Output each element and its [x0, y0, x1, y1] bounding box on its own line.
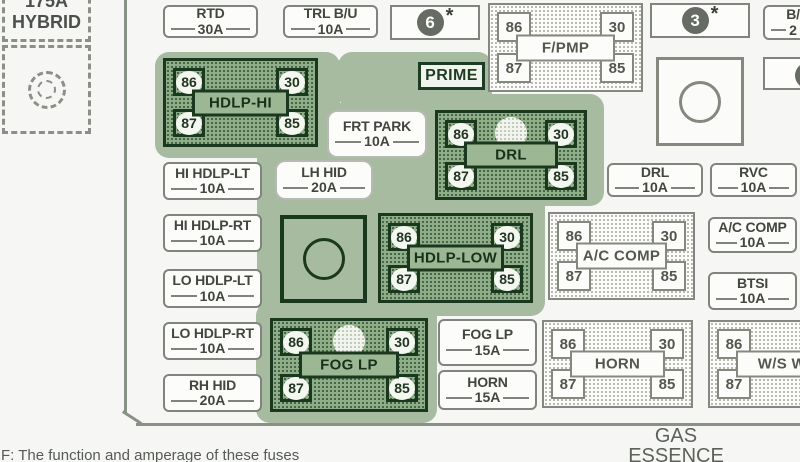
fuse-amperage: 10A	[364, 134, 390, 149]
amp-tick-left	[771, 29, 786, 31]
fuse-label: LO HDLP-RT	[168, 326, 257, 341]
amp-tick-left	[446, 349, 472, 351]
amp-tick-left	[171, 188, 197, 190]
amp-tick-right	[503, 397, 529, 399]
amp-tick-right	[503, 349, 529, 351]
relay-f_pmp: 86308785F/PMP	[488, 3, 643, 92]
amp-tick-right	[671, 187, 695, 189]
hybrid-amp: 175A	[25, 0, 68, 12]
relay-hdlp_low: 86308785HDLP-LOW	[378, 213, 533, 303]
fuse-amperage: 30A	[198, 22, 224, 37]
amp-tick-right	[228, 188, 254, 190]
fuse-amperage: 10A	[200, 341, 226, 356]
fuse-label: RH HID	[168, 378, 257, 393]
fuse-amperage: 10A	[740, 291, 766, 306]
fuse-amperage: 15A	[475, 343, 501, 358]
fuse-horn: HORN15A	[438, 370, 537, 410]
terminal-number: 86	[283, 331, 309, 354]
amp-tick-left	[171, 240, 197, 242]
hybrid-name: HYBRID	[12, 12, 81, 33]
fuse-label: FOG LP	[443, 327, 532, 342]
badge-partial-box	[763, 57, 800, 90]
amp-tick-left	[171, 348, 197, 350]
badge-3-star: *	[711, 3, 719, 26]
fuse-rh_hid: RH HID20A	[163, 374, 262, 412]
amp-tick-right	[346, 28, 370, 30]
fuse-label: BTSI	[713, 276, 792, 291]
fuse-label: HI HDLP-LT	[168, 166, 257, 181]
amp-tick-right	[228, 348, 254, 350]
fuse-amperage: 10A	[318, 22, 344, 37]
fuse-rtd: RTD30A	[163, 5, 258, 38]
amp-tick-right	[228, 295, 254, 297]
badge-6-box: 6 *	[390, 5, 480, 40]
fuse-amperage: 2	[789, 23, 797, 38]
fuse-label: B/	[768, 7, 800, 22]
fuse-lh_hid: LH HID20A	[275, 160, 373, 200]
amp-tick-left	[718, 187, 738, 189]
amp-tick-right	[228, 400, 254, 402]
fuse-label: LO HDLP-LT	[168, 273, 257, 288]
gas-essence-label: GAS ESSENCE	[596, 426, 756, 462]
panel-left-edge	[124, 0, 127, 414]
footnote-text: F: The function and amperage of these fu…	[1, 447, 299, 462]
fuse-hi_hdlp_lt: HI HDLP-LT10A	[163, 162, 262, 200]
hybrid-maxi-fuse-label: 175A HYBRID	[2, 0, 91, 42]
fuse-amperage: 10A	[740, 235, 766, 250]
relay-socket-icon	[679, 81, 721, 123]
fuse-label: HI HDLP-RT	[168, 218, 257, 233]
fuse-frt_park: FRT PARK10A	[327, 110, 427, 158]
fuse-label: RTD	[168, 6, 253, 21]
amp-tick-right	[228, 240, 254, 242]
amp-tick-left	[446, 397, 472, 399]
relay-name-bar: A/C COMP	[576, 243, 667, 270]
fuse-label: DRL	[612, 165, 698, 180]
fuse-lo_hdlp_rt: LO HDLP-RT10A	[163, 322, 262, 360]
fuse-amperage: 10A	[200, 181, 226, 196]
amp-tick-left	[291, 28, 315, 30]
relay-ac_comp: 86308785A/C COMP	[548, 212, 695, 300]
terminal-number: 85	[389, 377, 415, 400]
relay-fog_lp: 86308785FOG LP	[270, 318, 428, 412]
fuse-amperage: 15A	[475, 390, 501, 405]
relay-ws_wa: 8687W/S WA	[708, 320, 800, 408]
fuse-box-diagram: 175A HYBRID 6 * 3 * PRIME GAS ESSENCE F:…	[0, 0, 800, 462]
relay-socket-box	[656, 57, 744, 146]
fuse-amperage: 20A	[311, 180, 337, 195]
amp-tick-right	[769, 187, 789, 189]
fuse-bu_partial: B/2	[763, 5, 800, 40]
badge-6-icon: 6	[417, 9, 444, 36]
fuse-amperage: 10A	[200, 233, 226, 248]
badge-3-box: 3 *	[650, 3, 750, 38]
fuse-rvc: RVC10A	[710, 163, 797, 197]
amp-tick-left	[171, 28, 195, 30]
fuse-label: LH HID	[280, 165, 368, 180]
amp-tick-left	[171, 295, 197, 297]
amp-tick-left	[716, 242, 737, 244]
badge-3-icon: 3	[682, 7, 709, 34]
amp-tick-left	[283, 187, 308, 189]
gas-text: GAS	[596, 426, 756, 446]
relay-socket-box-green	[280, 215, 367, 303]
amp-tick-right	[768, 298, 789, 300]
essence-text: ESSENCE	[596, 446, 756, 462]
fuse-label: HORN	[443, 375, 532, 390]
badge-6-star: *	[446, 5, 454, 28]
relay-name-bar: HDLP-LOW	[407, 245, 504, 272]
fuse-lo_hdlp_lt: LO HDLP-LT10A	[163, 269, 262, 308]
relay-name-bar: W/S WA	[736, 351, 800, 378]
fuse-label: FRT PARK	[332, 119, 422, 134]
prime-label: PRIME	[418, 62, 485, 90]
fuse-label: TRL B/U	[288, 6, 373, 21]
fuse-btsi: BTSI10A	[708, 272, 797, 310]
relay-name-bar: HDLP-HI	[192, 89, 289, 116]
fuse-hi_hdlp_rt: HI HDLP-RT10A	[163, 214, 262, 252]
amp-tick-right	[340, 187, 365, 189]
hybrid-socket-inner-icon	[37, 80, 56, 99]
amp-tick-left	[171, 400, 197, 402]
fuse-label: A/C COMP	[713, 220, 792, 235]
terminal-number: 30	[389, 331, 415, 354]
relay-socket-icon-green	[303, 238, 345, 280]
fuse-amperage: 20A	[200, 393, 226, 408]
relay-name-bar: HORN	[570, 351, 665, 378]
amp-tick-right	[768, 242, 789, 244]
hybrid-maxi-fuse-socket	[2, 45, 91, 134]
relay-name-bar: FOG LP	[299, 352, 399, 379]
fuse-trl_bu: TRL B/U10A	[283, 5, 378, 38]
amp-tick-left	[615, 187, 639, 189]
amp-tick-right	[393, 141, 419, 143]
hybrid-socket-icon	[28, 71, 66, 109]
fuse-amperage: 10A	[642, 180, 668, 195]
amp-tick-left	[335, 141, 361, 143]
fuse-label: RVC	[715, 165, 792, 180]
badge-partial-icon	[795, 62, 800, 89]
amp-tick-right	[226, 28, 250, 30]
amp-tick-left	[716, 298, 737, 300]
terminal-number: 87	[283, 377, 309, 400]
relay-drl: 86308785DRL	[435, 110, 587, 200]
fuse-ac_comp: A/C COMP10A	[708, 217, 797, 253]
relay-horn: 86308785HORN	[542, 320, 693, 408]
fuse-drl: DRL10A	[607, 163, 703, 197]
relay-name-bar: DRL	[464, 142, 558, 169]
relay-name-bar: F/PMP	[516, 34, 615, 61]
fuse-amperage: 10A	[741, 180, 767, 195]
fuse-amperage: 10A	[200, 289, 226, 304]
fuse-fog_lp: FOG LP15A	[438, 319, 537, 366]
relay-hdlp_hi: 86308785HDLP-HI	[163, 58, 318, 147]
